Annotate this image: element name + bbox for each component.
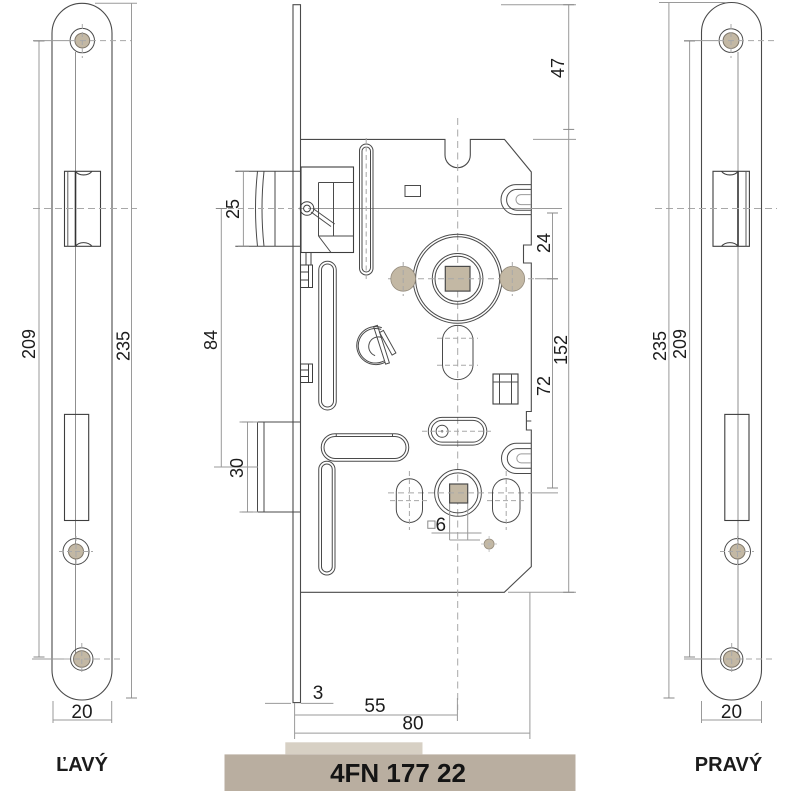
svg-text:47: 47 xyxy=(548,58,568,78)
svg-text:152: 152 xyxy=(551,335,571,365)
svg-text:209: 209 xyxy=(670,329,690,359)
svg-text:20: 20 xyxy=(71,702,92,723)
svg-text:209: 209 xyxy=(19,329,39,359)
svg-text:PRAVÝ: PRAVÝ xyxy=(695,752,763,776)
svg-text:30: 30 xyxy=(227,458,247,478)
svg-text:235: 235 xyxy=(114,331,134,361)
svg-text:ĽAVÝ: ĽAVÝ xyxy=(56,752,109,776)
svg-text:55: 55 xyxy=(364,696,385,717)
svg-text:80: 80 xyxy=(402,714,423,735)
svg-text:20: 20 xyxy=(721,702,742,723)
svg-text:3: 3 xyxy=(313,683,324,704)
svg-text:235: 235 xyxy=(650,331,670,361)
svg-text:24: 24 xyxy=(534,233,554,253)
svg-text:84: 84 xyxy=(201,330,221,350)
svg-text:72: 72 xyxy=(534,376,554,396)
svg-text:4FN 177 22: 4FN 177 22 xyxy=(330,758,466,788)
